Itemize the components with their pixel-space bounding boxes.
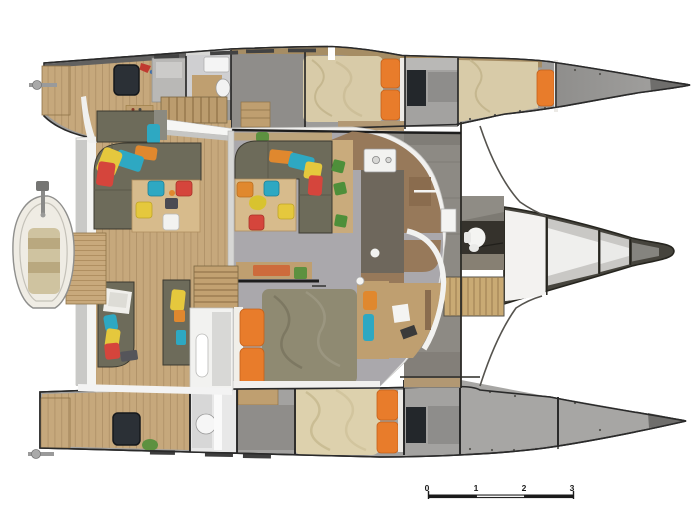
svg-text:0: 0 (425, 483, 430, 493)
svg-text:2: 2 (522, 483, 527, 493)
svg-text:3: 3 (570, 483, 575, 493)
svg-text:1: 1 (474, 483, 479, 493)
